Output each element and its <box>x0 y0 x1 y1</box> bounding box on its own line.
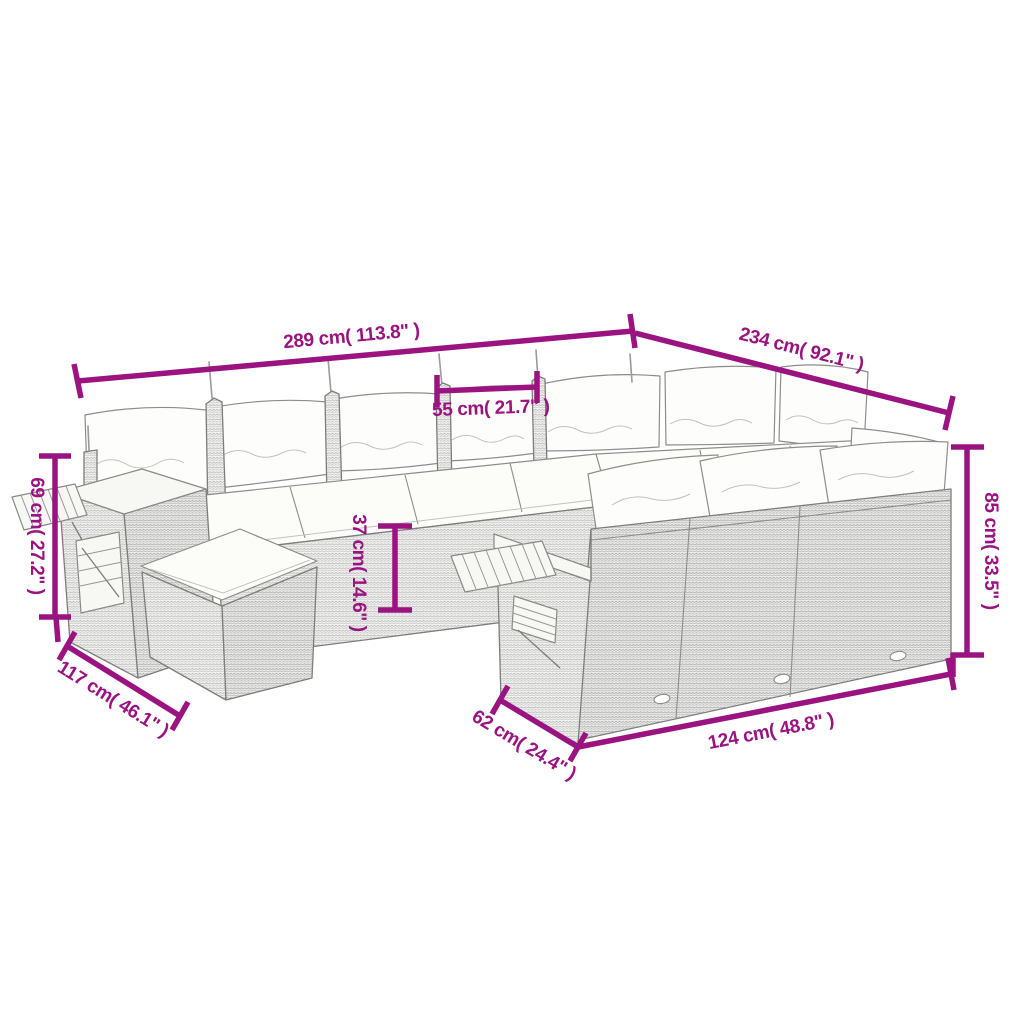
front-row-wall <box>574 489 951 741</box>
dimension-label-37: 37 cm( 14.6" ) <box>348 514 369 632</box>
product-dimension-diagram: 289 cm( 113.8" ) 234 cm( 92.1" ) 55 cm( … <box>0 0 1024 1024</box>
dimension-back-height-right: 85 cm( 33.5" ) <box>951 447 1001 677</box>
dimension-label-289: 289 cm( 113.8" ) <box>282 320 420 353</box>
dimension-label-69: 69 cm( 27.2" ) <box>26 477 47 595</box>
dimension-label-55: 55 cm( 21.7" ) <box>432 396 550 421</box>
sofa-dimension-drawing: 289 cm( 113.8" ) 234 cm( 92.1" ) 55 cm( … <box>0 0 1024 1024</box>
left-brace-panel <box>76 532 124 613</box>
dimension-label-85: 85 cm( 33.5" ) <box>980 492 1001 610</box>
